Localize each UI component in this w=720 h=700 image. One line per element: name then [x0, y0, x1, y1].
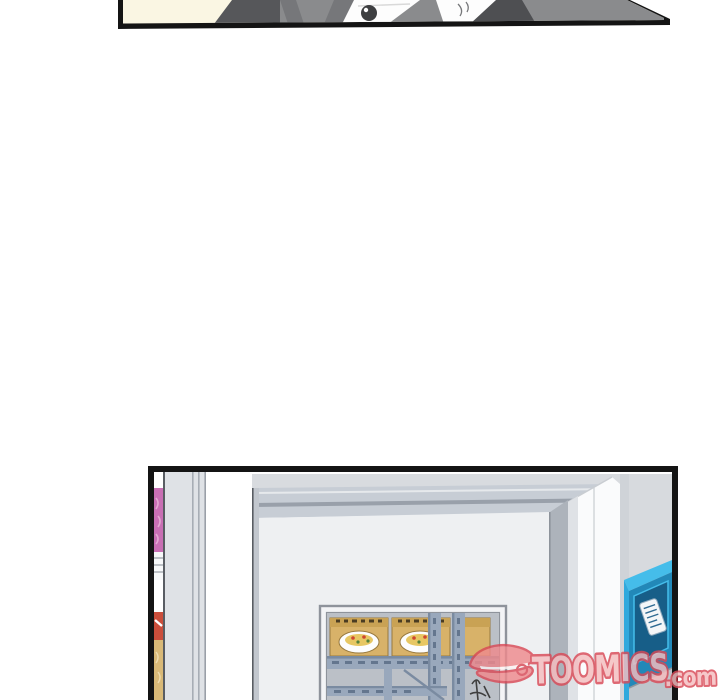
watermark-mask-icon: [469, 644, 534, 683]
domain-fill: .com: [664, 663, 717, 692]
comic-panel-top: [118, 0, 672, 30]
panel-top-art: [118, 0, 672, 30]
watermark-domain-text: .com .com: [664, 663, 717, 692]
pink-package: [154, 488, 163, 552]
door-left-jamb: [252, 488, 259, 700]
collar-button: [361, 5, 377, 21]
tan-package: [154, 640, 163, 700]
garnish-green: [366, 639, 369, 642]
post-edge: [452, 613, 454, 700]
small-post: [384, 669, 392, 700]
end-panel-right-edge: [204, 472, 206, 700]
brand-fill: TOOMICS: [531, 646, 668, 693]
garnish-red: [423, 635, 427, 639]
garnish-green: [417, 640, 420, 643]
garnish-red: [412, 636, 416, 640]
end-panel-seam-2: [198, 472, 200, 700]
watermark-brand-text: TOOMICS TOOMICS: [531, 646, 668, 693]
watermark-art: TOOMICS TOOMICS .com .com: [466, 636, 720, 700]
shelf-band: [154, 552, 163, 580]
end-panel-seam: [192, 472, 194, 700]
end-panel-edge: [163, 472, 165, 700]
webtoon-scroll-page: { "page": { "background": "#ffffff" }, "…: [0, 0, 720, 700]
steel-shelf-post-2: [452, 613, 465, 700]
noodle-package-1: [330, 618, 388, 656]
garnish-red: [351, 636, 355, 640]
toomics-watermark: TOOMICS TOOMICS .com .com: [466, 636, 720, 700]
left-jamb-edge: [252, 488, 254, 700]
noodle-package-2: [392, 618, 450, 656]
snack-shelf-side: [163, 472, 206, 700]
button-highlight: [364, 8, 368, 12]
garnish-green: [356, 640, 359, 643]
garnish-red: [362, 635, 366, 639]
